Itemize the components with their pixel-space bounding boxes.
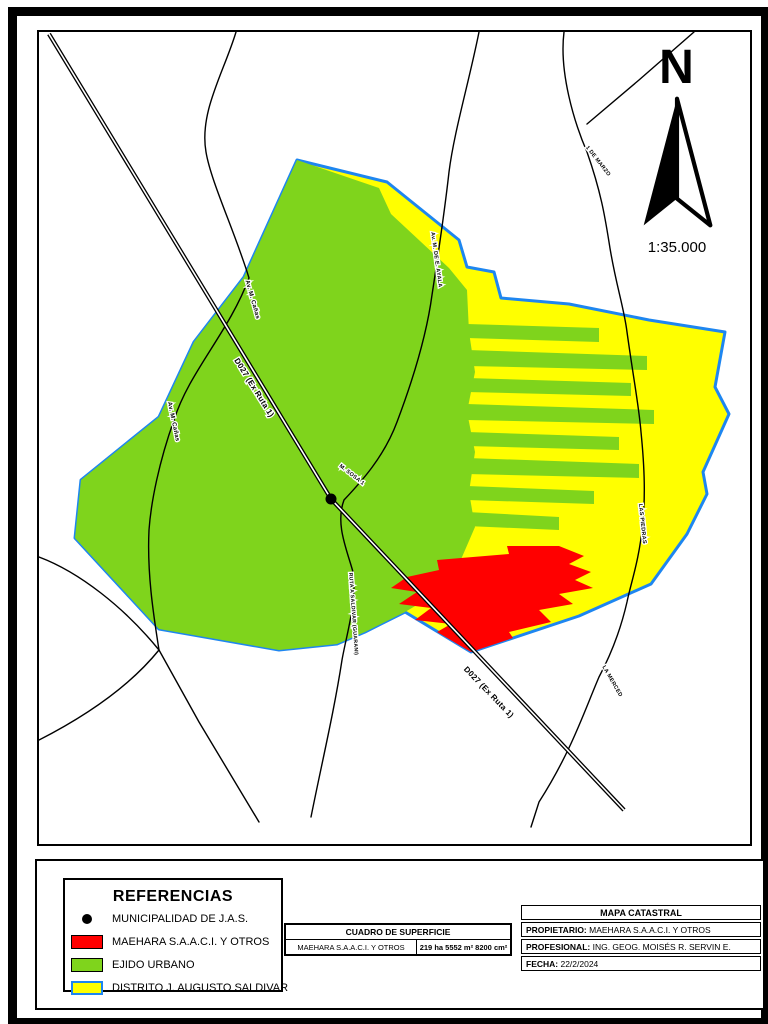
info-label: PROPIETARIO: — [526, 925, 587, 935]
legend-box: REFERENCIAS MUNICIPALIDAD DE J.A.S. MAEH… — [63, 878, 283, 992]
map-frame: D027 (Ex Ruta 1)D027 (Ex Ruta 1)Av. M. C… — [37, 30, 752, 846]
north-letter: N — [632, 46, 722, 90]
municipality-dot — [326, 494, 337, 505]
info-row-profesional: PROFESIONAL: ING. GEOG. MOISÉS R. SERVIN… — [521, 939, 761, 954]
surface-area-cell: 219 ha 5552 m² 8200 cm² — [417, 940, 510, 954]
info-label: FECHA: — [526, 959, 558, 969]
legend-item-label: EJIDO URBANO — [112, 959, 195, 971]
north-indicator: N 1:35.000 — [632, 46, 722, 256]
green-swatch-icon — [71, 958, 103, 972]
info-value: MAEHARA S.A.A.C.I. Y OTROS — [587, 925, 711, 935]
north-arrow-icon — [632, 92, 722, 235]
municipality-dot-icon — [71, 912, 103, 926]
red-swatch-icon — [71, 935, 103, 949]
road-label: 1 DE MARZO — [584, 145, 612, 178]
surface-table-title: CUADRO DE SUPERFICIE — [286, 925, 510, 940]
cadastral-info-box: MAPA CATASTRAL PROPIETARIO: MAEHARA S.A.… — [521, 905, 761, 973]
info-row-propietario: PROPIETARIO: MAEHARA S.A.A.C.I. Y OTROS — [521, 922, 761, 937]
info-row-fecha: FECHA: 22/2/2024 — [521, 956, 761, 971]
table-row: MAEHARA S.A.A.C.I. Y OTROS 219 ha 5552 m… — [286, 940, 510, 954]
legend-item-ejido: EJIDO URBANO — [71, 954, 281, 975]
legend-item-label: MUNICIPALIDAD DE J.A.S. — [112, 913, 248, 925]
info-value: ING. GEOG. MOISÉS R. SERVIN E. — [590, 942, 731, 952]
info-value: 22/2/2024 — [558, 959, 598, 969]
bottom-panel: REFERENCIAS MUNICIPALIDAD DE J.A.S. MAEH… — [35, 859, 765, 1010]
info-box-title: MAPA CATASTRAL — [521, 905, 761, 920]
yellow-swatch-icon — [71, 981, 103, 995]
outer-frame: D027 (Ex Ruta 1)D027 (Ex Ruta 1)Av. M. C… — [8, 7, 768, 1024]
legend-title: REFERENCIAS — [65, 888, 281, 906]
road-label: D027 (Ex Ruta 1) — [462, 665, 516, 720]
map-scale: 1:35.000 — [632, 239, 722, 256]
surface-table: CUADRO DE SUPERFICIE MAEHARA S.A.A.C.I. … — [284, 923, 512, 956]
legend-item-label: DISTRITO J. AUGUSTO SALDIVAR — [112, 982, 288, 994]
road-west-branch-sw — [39, 650, 159, 740]
legend-item-label: MAEHARA S.A.A.C.I. Y OTROS — [112, 936, 269, 948]
info-label: PROFESIONAL: — [526, 942, 590, 952]
legend-item-maehara: MAEHARA S.A.A.C.I. Y OTROS — [71, 931, 281, 952]
cadastral-map-page: D027 (Ex Ruta 1)D027 (Ex Ruta 1)Av. M. C… — [0, 0, 768, 1024]
legend-item-municipalidad: MUNICIPALIDAD DE J.A.S. — [71, 908, 281, 929]
legend-item-distrito: DISTRITO J. AUGUSTO SALDIVAR — [71, 977, 281, 998]
road-label: LA MERCED — [600, 665, 623, 698]
surface-owner-cell: MAEHARA S.A.A.C.I. Y OTROS — [286, 940, 417, 954]
